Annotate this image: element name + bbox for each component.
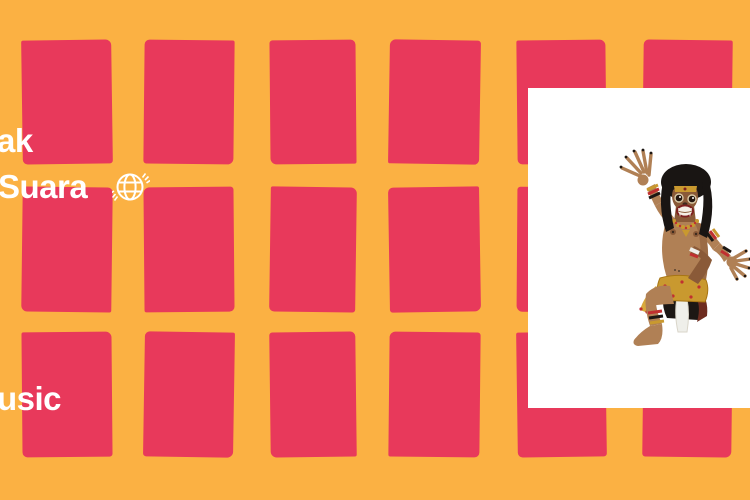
red-grid-rect — [143, 187, 234, 313]
headline-fragment-top: ak — [0, 124, 33, 157]
red-grid-rect — [143, 331, 235, 457]
red-grid-rect — [388, 39, 481, 164]
red-grid-rect — [388, 186, 481, 312]
headline-fragment-bottom: usic — [0, 382, 61, 415]
banner: ak Suara usic — [0, 0, 750, 500]
spinning-globe-icon — [112, 168, 150, 206]
ogoh-ogoh-figure-image — [610, 146, 750, 354]
red-grid-rect — [143, 40, 234, 165]
headline-fragment-middle: Suara — [0, 170, 87, 203]
red-grid-rect — [21, 186, 113, 312]
red-grid-rect — [269, 186, 357, 312]
red-grid-rect — [21, 39, 113, 164]
red-grid-rect — [269, 40, 356, 165]
red-grid-rect — [388, 332, 480, 458]
red-grid-rect — [269, 331, 357, 457]
